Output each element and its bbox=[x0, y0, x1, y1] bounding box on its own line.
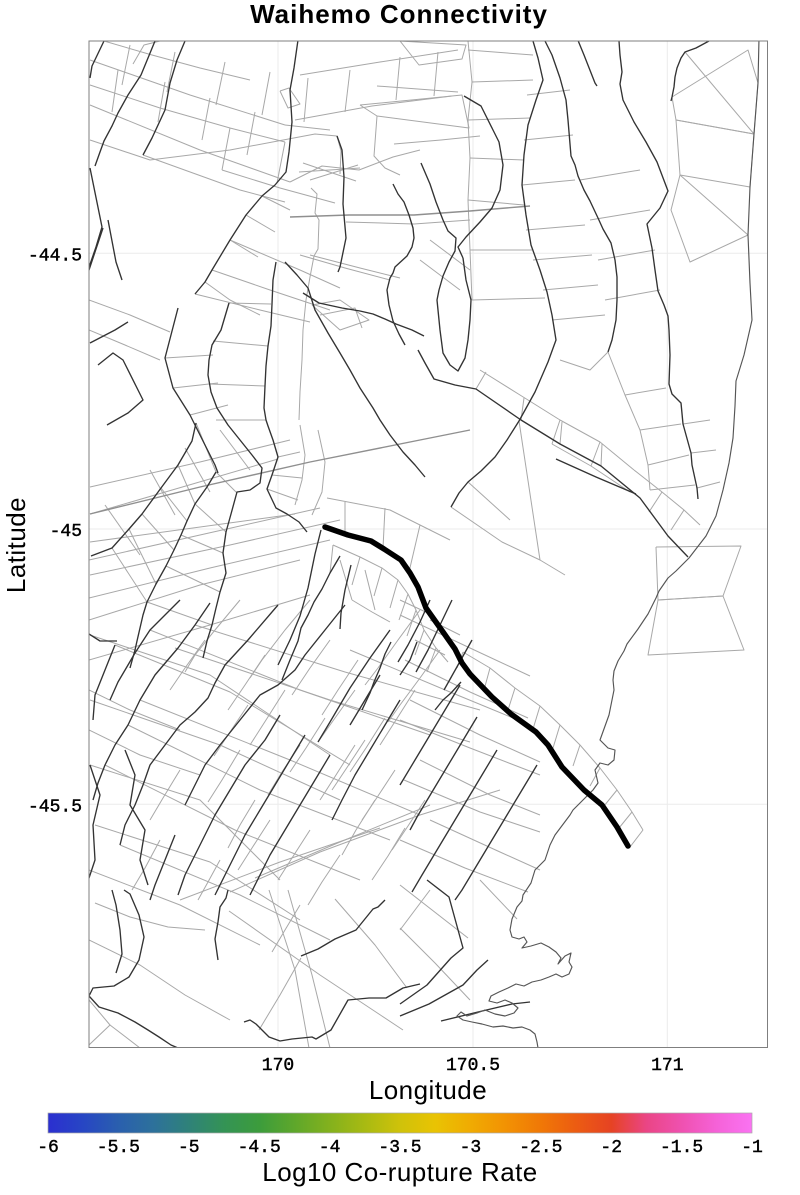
svg-text:-4.5: -4.5 bbox=[238, 1138, 281, 1158]
svg-text:-3.5: -3.5 bbox=[378, 1138, 421, 1158]
svg-text:-2: -2 bbox=[600, 1138, 622, 1158]
svg-text:-44.5: -44.5 bbox=[28, 246, 82, 266]
svg-text:-5: -5 bbox=[178, 1138, 200, 1158]
svg-text:171: 171 bbox=[651, 1056, 683, 1076]
svg-text:-3: -3 bbox=[460, 1138, 482, 1158]
svg-text:-1.5: -1.5 bbox=[660, 1138, 703, 1158]
svg-text:Waihemo Connectivity: Waihemo Connectivity bbox=[250, 0, 548, 29]
svg-text:-1: -1 bbox=[741, 1138, 763, 1158]
svg-text:-2.5: -2.5 bbox=[519, 1138, 562, 1158]
svg-text:-6: -6 bbox=[37, 1138, 59, 1158]
svg-text:170.5: 170.5 bbox=[446, 1056, 500, 1076]
svg-text:Log10 Co-rupture Rate: Log10 Co-rupture Rate bbox=[262, 1157, 537, 1187]
svg-text:Latitude: Latitude bbox=[1, 497, 31, 593]
svg-text:170: 170 bbox=[262, 1056, 294, 1076]
svg-text:Longitude: Longitude bbox=[369, 1075, 487, 1105]
svg-text:-5.5: -5.5 bbox=[97, 1138, 140, 1158]
svg-text:-45.5: -45.5 bbox=[28, 797, 82, 817]
svg-text:-4: -4 bbox=[319, 1138, 341, 1158]
svg-text:-45: -45 bbox=[50, 522, 82, 542]
